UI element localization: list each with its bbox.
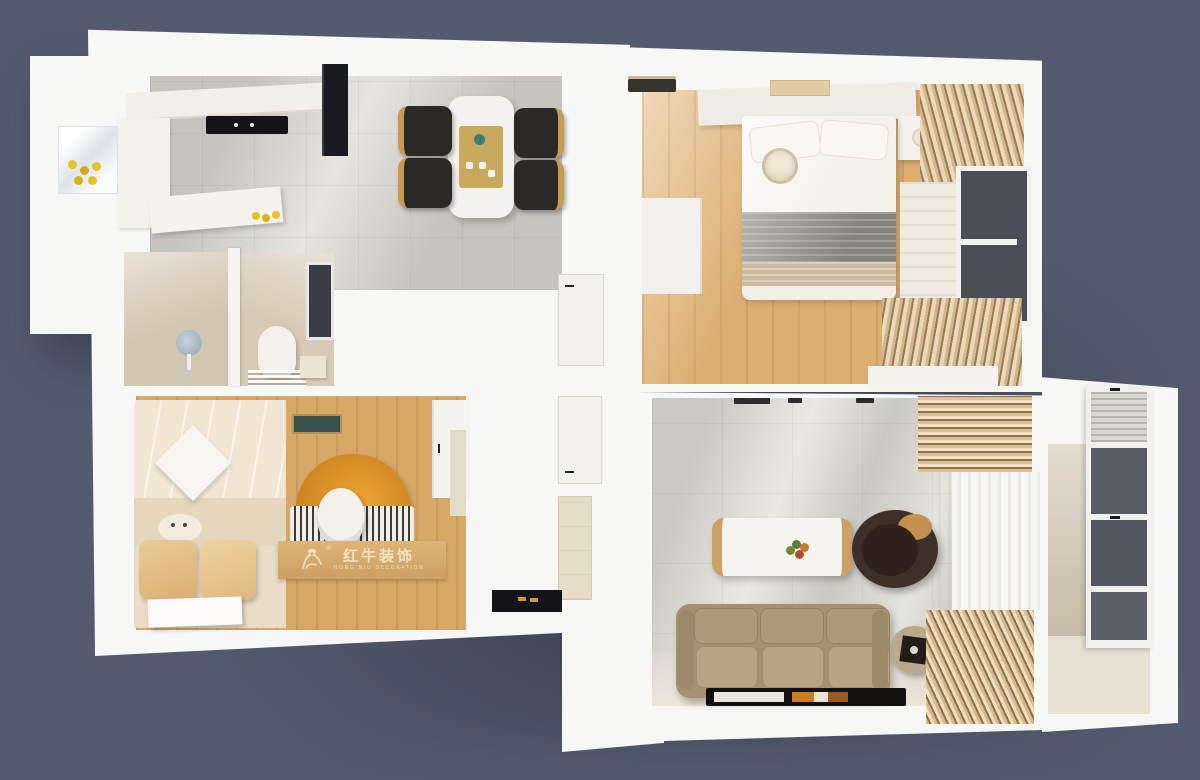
bed-pillow [819,119,890,161]
window-shelf-glassware [58,126,118,194]
balcony-wall-tile [1048,444,1086,638]
sofa-armrest [872,610,888,690]
wall-vent [856,398,874,403]
registered-mark: ® [326,545,332,552]
hallway-cabinet [558,396,602,484]
watermark-text-group: 红牛装饰 HONG NIU DECORATION [334,549,425,571]
kitchen-cooktop [206,116,288,134]
lemons-on-counter [252,212,260,220]
wall-vent [788,398,802,403]
bed-end-bench [148,596,243,627]
bedroom-side-cabinet [642,198,702,294]
sofa-seat-cushion [762,646,824,688]
watermark-title-cn: 红牛装饰 [343,549,415,564]
sofa-back-cushion [760,608,824,644]
lemons-on-shelf [68,160,77,169]
roman-shade [900,182,964,300]
tv-panel [706,688,906,706]
knot-pillow [762,148,798,184]
cabinet-handle [565,471,574,473]
kitchen-tall-appliance [322,64,348,156]
window-handle [1110,388,1120,391]
armchair [852,510,938,588]
cups-decor [466,162,473,169]
sofa-seat-cushion [696,646,758,688]
window-sill [868,366,998,390]
bedroom-inner-wall [450,430,466,516]
watermark-subtitle-en: HONG NIU DECORATION [334,566,425,571]
entry-doormat [492,590,562,612]
hallway-wood-door [558,496,592,600]
bathroom-window [306,262,334,340]
floorplan-scene: ® 红牛装饰 HONG NIU DECORATION [0,0,1200,780]
vase-decor [474,134,485,145]
wall-vent [734,398,770,404]
headboard-decor-tray [770,80,830,96]
watermark: ® 红牛装饰 HONG NIU DECORATION [278,541,446,579]
balcony-glass-pane [1091,448,1147,514]
bathroom-divider-wall [228,248,240,386]
shower-head [176,330,202,356]
table-plant [792,540,801,549]
dining-chair [398,158,452,208]
coffee-table [712,518,852,576]
living-curtain-top [918,396,1032,472]
balcony-blind-pane [1091,392,1147,442]
wall-west-wing [30,56,98,334]
tan-pillow [139,540,197,600]
cabinet-handle [565,285,574,287]
bed-blanket [134,498,286,546]
tan-pillow [200,540,256,600]
wall-niche [628,76,676,92]
balcony-window-unit [1086,386,1152,648]
sofa-back-cushion [694,608,758,644]
balcony-glass-pane [1091,592,1147,640]
towel-rack [248,370,306,386]
bathroom-cabinet [300,356,326,378]
dining-chair [398,106,452,156]
owl-pillow [158,514,202,542]
hallway-cabinet [558,274,604,366]
living-curtain-bottom [926,610,1034,724]
bed-foot [742,286,896,300]
dining-chair [514,108,564,158]
wardrobe-handle [438,444,440,453]
shower-room-floor [124,252,228,386]
window-handle [1110,516,1120,519]
sofa-armrest [678,610,694,690]
dining-chair [514,160,564,210]
wall-entry-block [562,600,664,752]
living-sheer-curtain [938,472,1040,610]
wall-artwork [292,414,342,434]
tan-throw-blanket [742,262,896,288]
gray-throw-blanket [742,212,896,266]
balcony-glass-pane [1091,520,1147,586]
bull-logo-icon [300,548,324,572]
desk-chair [317,488,365,548]
